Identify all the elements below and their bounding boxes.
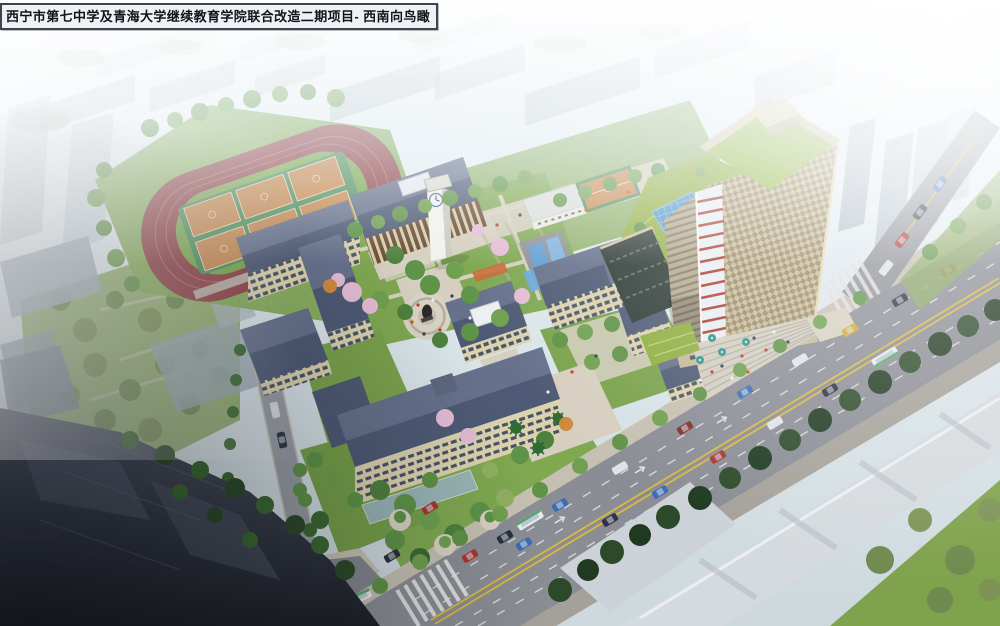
view-title-text: 西宁市第七中学及青海大学继续教育学院联合改造二期项目- 西南向鸟瞰 [6, 9, 430, 24]
rendering-viewport: 西宁市第七中学及青海大学继续教育学院联合改造二期项目- 西南向鸟瞰 [0, 0, 1000, 626]
view-title-label: 西宁市第七中学及青海大学继续教育学院联合改造二期项目- 西南向鸟瞰 [0, 3, 438, 30]
atmosphere-haze [0, 0, 1000, 626]
aerial-rendering [0, 0, 1000, 626]
